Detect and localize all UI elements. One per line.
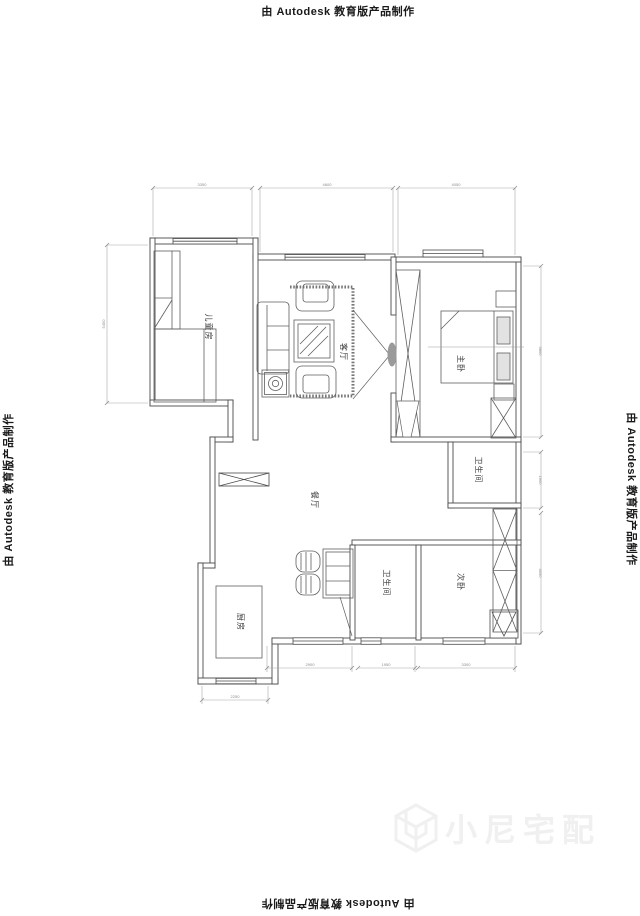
- dining-table: [323, 549, 353, 598]
- dim-right-2: 1900: [538, 476, 543, 486]
- dimension-lines: [105, 186, 543, 704]
- wall-bath-lower-right: [416, 545, 421, 640]
- wall-kitchen-right: [272, 638, 278, 684]
- living-rug: [290, 287, 353, 396]
- nightstand-top: [496, 291, 516, 307]
- wall-living-master-upper: [391, 257, 396, 315]
- windows: [173, 239, 518, 684]
- wall-kitchen-left: [198, 563, 203, 684]
- room-label-kitchen: 厨房: [236, 613, 246, 631]
- sofa: [257, 302, 289, 374]
- dim-top-1: 3350: [198, 182, 208, 187]
- walls: [150, 238, 521, 684]
- window-master-top: [423, 250, 483, 257]
- room-labels: 儿童房 客厅 主卧 卫生间 餐厅 卫生间 次卧 厨房: [204, 314, 484, 632]
- wall-bath-upper-left: [448, 442, 453, 508]
- wall-children-bottom: [150, 400, 233, 406]
- window-bottom-right: [443, 638, 485, 645]
- entry-door-swing: [353, 310, 397, 399]
- floor-plan: 3350 4600 4050 5450 5800 1900 4050 2900 …: [0, 0, 640, 916]
- window-kitchen-bottom: [216, 678, 256, 684]
- window-living-top: [285, 255, 365, 261]
- room-label-master: 主卧: [456, 355, 466, 373]
- wall-living-master-lower: [391, 393, 396, 442]
- wall-bath-upper-bottom: [448, 503, 521, 508]
- window-bottom-middle: [361, 638, 381, 645]
- dim-right-3: 4050: [538, 569, 543, 579]
- dim-top-3: 4050: [452, 182, 462, 187]
- wall-second-top: [352, 540, 521, 545]
- dim-bottom-kitchen: 2250: [231, 694, 241, 699]
- master-bed: [428, 311, 524, 383]
- dim-left-1: 5450: [101, 319, 106, 329]
- window-bottom-left: [293, 638, 343, 645]
- dining-chair-2: [296, 574, 320, 595]
- wall-dining-left: [210, 437, 215, 568]
- wall-step-vertical: [228, 400, 233, 442]
- armchair-top: [296, 281, 334, 311]
- coffee-table: [294, 320, 334, 362]
- room-label-bath-upper: 卫生间: [474, 457, 484, 484]
- room-label-second: 次卧: [456, 573, 466, 591]
- closet-master-corner: [491, 398, 516, 438]
- dining-chair-1: [296, 551, 320, 572]
- dim-bottom-2: 1950: [382, 662, 392, 667]
- window-children-top: [173, 239, 237, 245]
- master-door-leaf: [397, 401, 419, 437]
- dim-top-2: 4600: [323, 182, 333, 187]
- wardrobe-children-room: [154, 251, 180, 329]
- wall-bath-lower-left: [350, 545, 355, 640]
- room-label-children: 儿童房: [204, 314, 214, 341]
- dim-bottom-3: 3300: [462, 662, 472, 667]
- room-label-dining: 餐厅: [310, 491, 319, 509]
- dim-right-1: 5800: [538, 347, 543, 357]
- room-label-living: 客厅: [339, 343, 349, 361]
- window-seat-left: [219, 473, 269, 486]
- wall-master-top: [393, 257, 521, 262]
- armchair-bottom: [296, 366, 336, 398]
- dim-bottom-1: 2900: [306, 662, 316, 667]
- room-label-bath-lower: 卫生间: [382, 570, 392, 597]
- dimension-ticks: [105, 186, 543, 702]
